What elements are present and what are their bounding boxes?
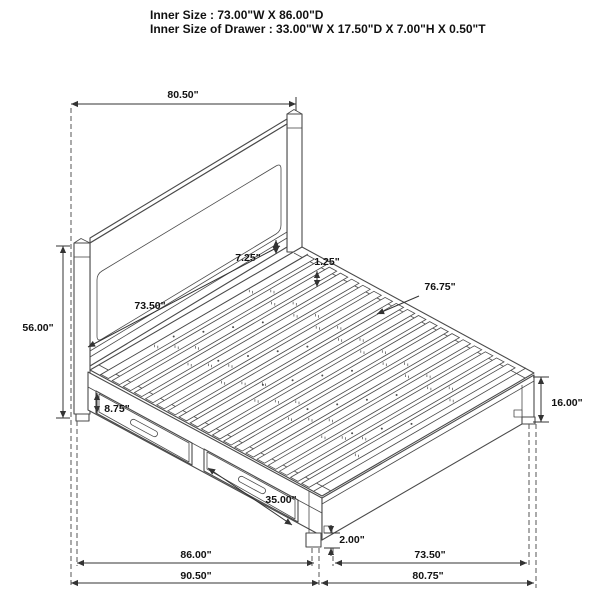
dim-foot-overall-label: 80.75" (412, 570, 443, 582)
slat-screw-dot (217, 360, 219, 362)
slat-screw-dot (277, 350, 279, 352)
dim-headboard-height-label: 56.00" (22, 322, 53, 334)
technical-drawing: 80.50" 56.00" 7.25" 1.25" 76.75" 73.50" … (0, 0, 600, 600)
slat-screw-dot (351, 370, 353, 372)
dim-drawer-width-label: 35.00" (265, 494, 296, 506)
dim-side-overall-label: 90.50" (180, 570, 211, 582)
slat-screw-dot (336, 403, 338, 405)
dim-headboard-inner-label: 73.50" (134, 300, 165, 312)
slat-screw-dot (411, 423, 413, 425)
slat-screw-dot (351, 432, 353, 434)
dim-headboard-width-label: 80.50" (167, 89, 198, 101)
dim-slat-thickness-label: 1.25" (314, 256, 339, 268)
headboard-right-post (287, 114, 302, 252)
right-post-cap (287, 110, 302, 115)
slat-screw-dot (381, 428, 383, 430)
slat-screw-dot (396, 394, 398, 396)
slat-screw-dot (262, 321, 264, 323)
footboard-right-foot (522, 417, 535, 424)
slat-screw-dot (306, 346, 308, 348)
dim-foot-height-label: 2.00" (339, 534, 364, 546)
dim-side-inner-label: 86.00" (180, 549, 211, 561)
dim-platform-height-label: 16.00" (551, 397, 582, 409)
slat-screw-dot (173, 336, 175, 338)
slat-screw-dot (292, 379, 294, 381)
slat-screw-dot (262, 384, 264, 386)
slat-screw-dot (232, 326, 234, 328)
dim-drawer-height-label: 8.75" (104, 403, 129, 415)
left-post-cap (74, 239, 90, 244)
footboard-left-foot (306, 533, 321, 547)
slat-screw-dot (247, 355, 249, 357)
slat-screw-dot (202, 331, 204, 333)
bed-dimension-diagram: Inner Size : 73.00"W X 86.00"D Inner Siz… (0, 0, 600, 600)
slat-screw-dot (366, 399, 368, 401)
slat-screw-dot (307, 408, 309, 410)
dim-foot-inner-label: 73.50" (414, 549, 445, 561)
footboard-right-step (514, 410, 522, 417)
left-post-foot (76, 414, 89, 421)
dim-slat-length-label: 76.75" (424, 281, 455, 293)
slat-screw-dot (321, 375, 323, 377)
